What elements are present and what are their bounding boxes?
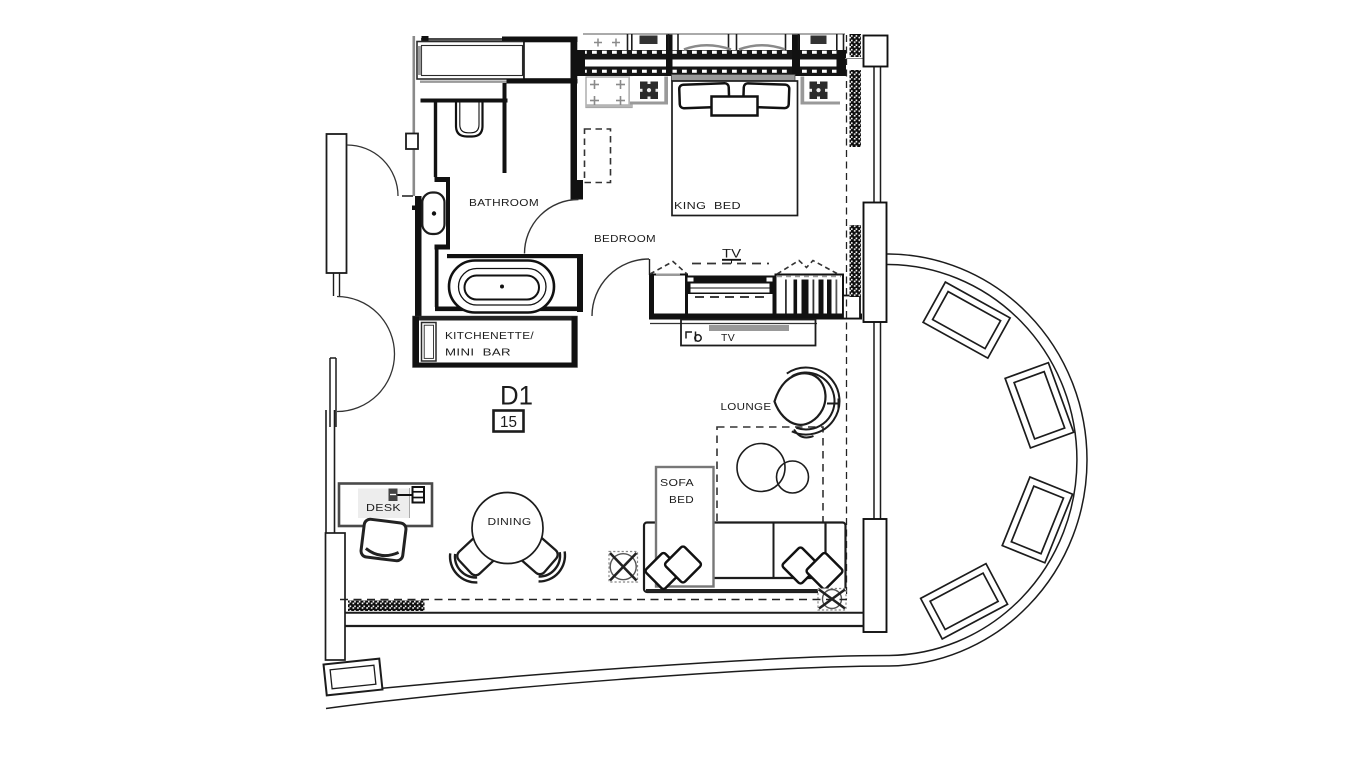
svg-text:KING BED: KING BED bbox=[674, 200, 741, 212]
svg-text:BED: BED bbox=[669, 494, 694, 506]
svg-text:TV: TV bbox=[722, 247, 741, 261]
svg-text:LOUNGE: LOUNGE bbox=[721, 401, 772, 413]
svg-text:15: 15 bbox=[500, 414, 517, 431]
svg-text:KITCHENETTE/: KITCHENETTE/ bbox=[445, 330, 534, 342]
svg-text:MINI BAR: MINI BAR bbox=[445, 347, 511, 359]
svg-text:TV: TV bbox=[721, 332, 735, 344]
svg-text:BEDROOM: BEDROOM bbox=[594, 233, 656, 245]
svg-text:D1: D1 bbox=[500, 381, 533, 411]
svg-text:DESK: DESK bbox=[366, 502, 401, 514]
svg-text:SOFA: SOFA bbox=[660, 477, 694, 489]
svg-text:BATHROOM: BATHROOM bbox=[469, 197, 539, 209]
svg-text:DINING: DINING bbox=[488, 516, 532, 528]
